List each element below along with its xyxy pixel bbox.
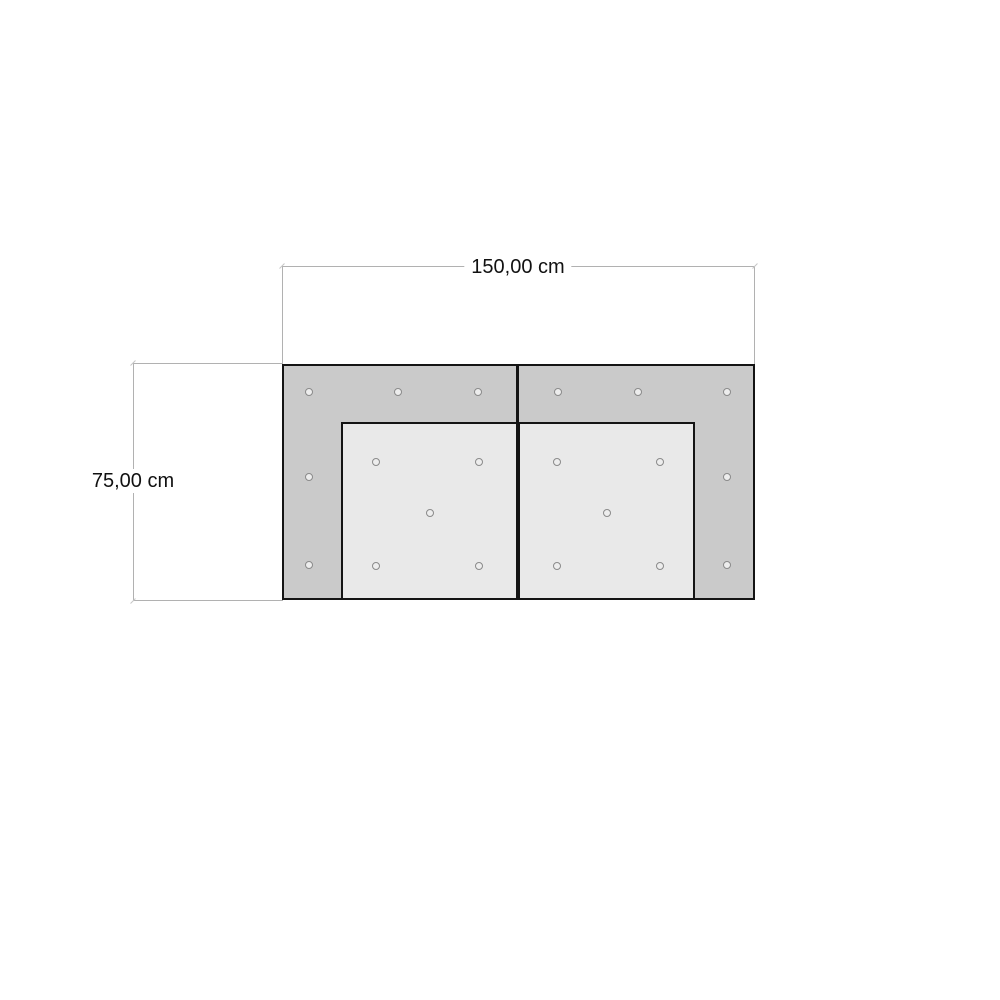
height-extension-line-bottom xyxy=(133,600,283,601)
dimension-tick xyxy=(752,263,758,269)
dimension-tick xyxy=(130,598,136,604)
height-dimension-label: 75,00 cm xyxy=(85,469,181,493)
center-divider-line xyxy=(516,364,519,600)
technical-drawing-canvas: 150,00 cm 75,00 cm xyxy=(0,0,1000,1000)
seat-panel-left xyxy=(341,422,518,600)
width-dimension-label: 150,00 cm xyxy=(464,255,571,279)
width-extension-line-right xyxy=(754,266,755,365)
width-extension-line-left xyxy=(282,266,283,365)
height-extension-line-top xyxy=(133,363,283,364)
seat-panel-right xyxy=(518,422,695,600)
